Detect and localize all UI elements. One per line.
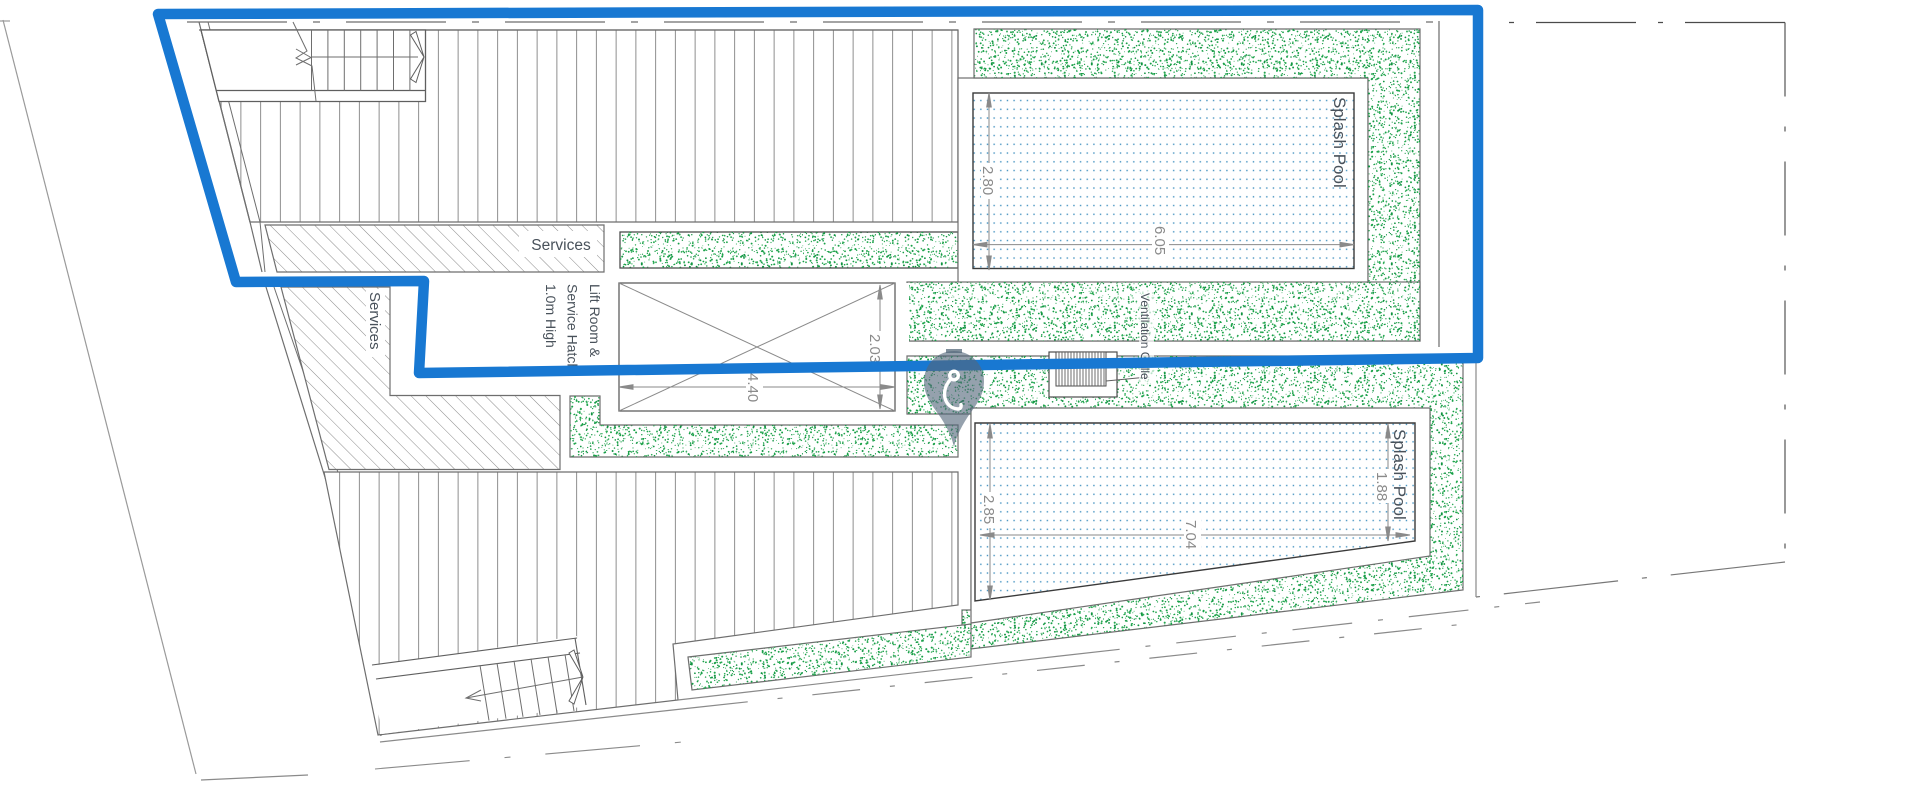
svg-text:2.80: 2.80 <box>979 166 996 195</box>
svg-text:Service Hatch: Service Hatch <box>565 284 581 371</box>
svg-text:1.0m High: 1.0m High <box>543 284 559 348</box>
svg-text:2.85: 2.85 <box>980 495 997 524</box>
svg-text:Splash Pool: Splash Pool <box>1330 97 1349 188</box>
svg-text:Lift Room &: Lift Room & <box>587 284 603 358</box>
svg-text:Services: Services <box>531 237 591 254</box>
svg-text:2.03: 2.03 <box>866 334 883 363</box>
svg-text:6.05: 6.05 <box>1151 226 1168 255</box>
svg-text:Services: Services <box>366 292 383 350</box>
svg-text:7.04: 7.04 <box>1182 520 1199 549</box>
svg-text:4.40: 4.40 <box>744 373 761 402</box>
svg-text:Splash Pool: Splash Pool <box>1390 429 1409 520</box>
svg-text:1.88: 1.88 <box>1373 472 1390 501</box>
